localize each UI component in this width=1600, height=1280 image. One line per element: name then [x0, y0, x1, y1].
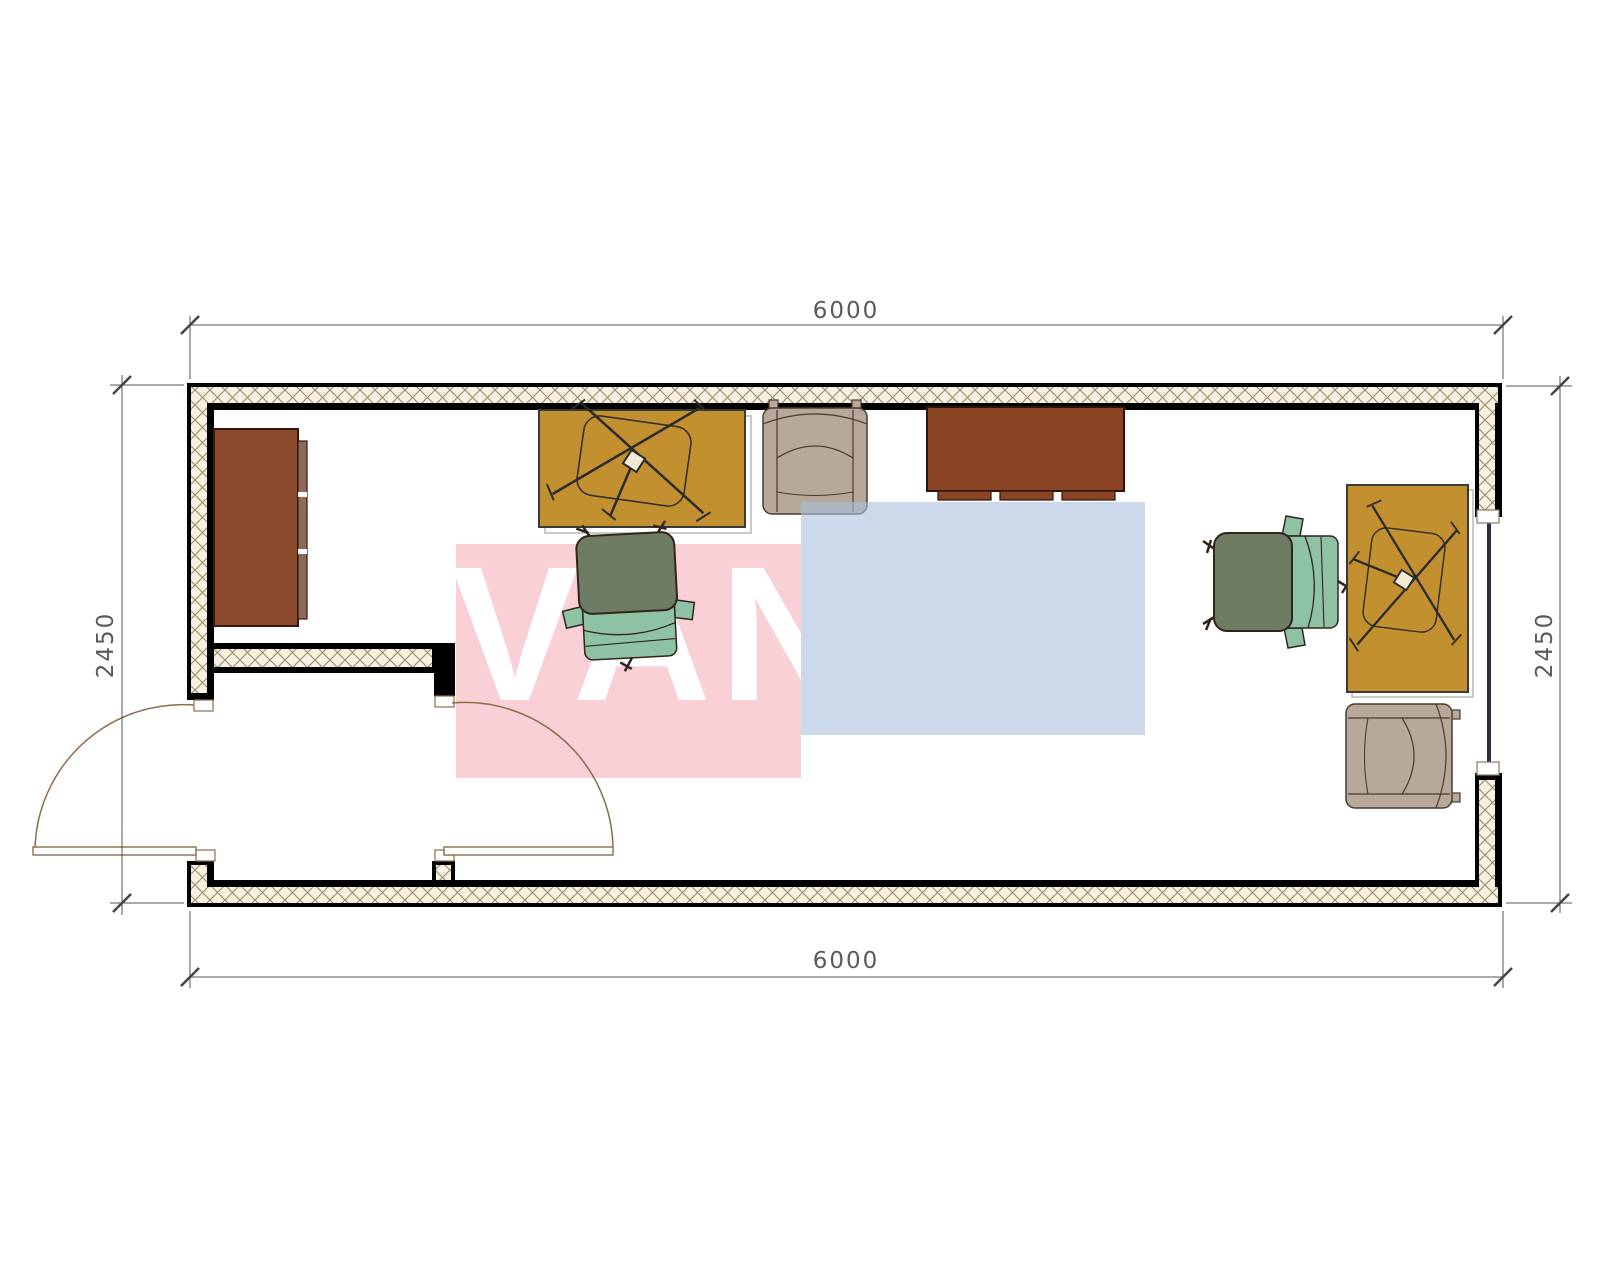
floor-plan-canvas: VANDA [0, 0, 1600, 1280]
window-frame-cap-top [1477, 510, 1499, 523]
wardrobe-handle [298, 549, 307, 554]
office-chair-right [1203, 516, 1351, 648]
door-leaf-left [33, 847, 196, 855]
watermark-blue-block [801, 502, 1145, 735]
window-glazing-line [1487, 521, 1491, 764]
window-frame-cap-bottom [1477, 762, 1499, 775]
dim-label-left: 2450 [93, 612, 119, 679]
dim-label-bottom: 6000 [813, 948, 880, 974]
wardrobe-cabinet [214, 429, 307, 626]
desk-right [1339, 485, 1476, 697]
armchair-bottom-right [1346, 704, 1460, 808]
door-leaf-right [444, 847, 613, 855]
door-frame [194, 700, 213, 711]
armchair-top [763, 400, 867, 514]
window [1477, 510, 1499, 775]
door-swing-arc-left [35, 705, 194, 848]
door-frame [435, 696, 454, 707]
dim-label-top: 6000 [813, 298, 880, 324]
floor-plan-svg: VANDA [0, 0, 1600, 1280]
credenza-cabinet [927, 407, 1124, 500]
wardrobe-front-panel [298, 441, 307, 619]
wardrobe-handle [298, 492, 307, 497]
dim-label-right: 2450 [1532, 612, 1558, 679]
door-frame [196, 850, 215, 861]
